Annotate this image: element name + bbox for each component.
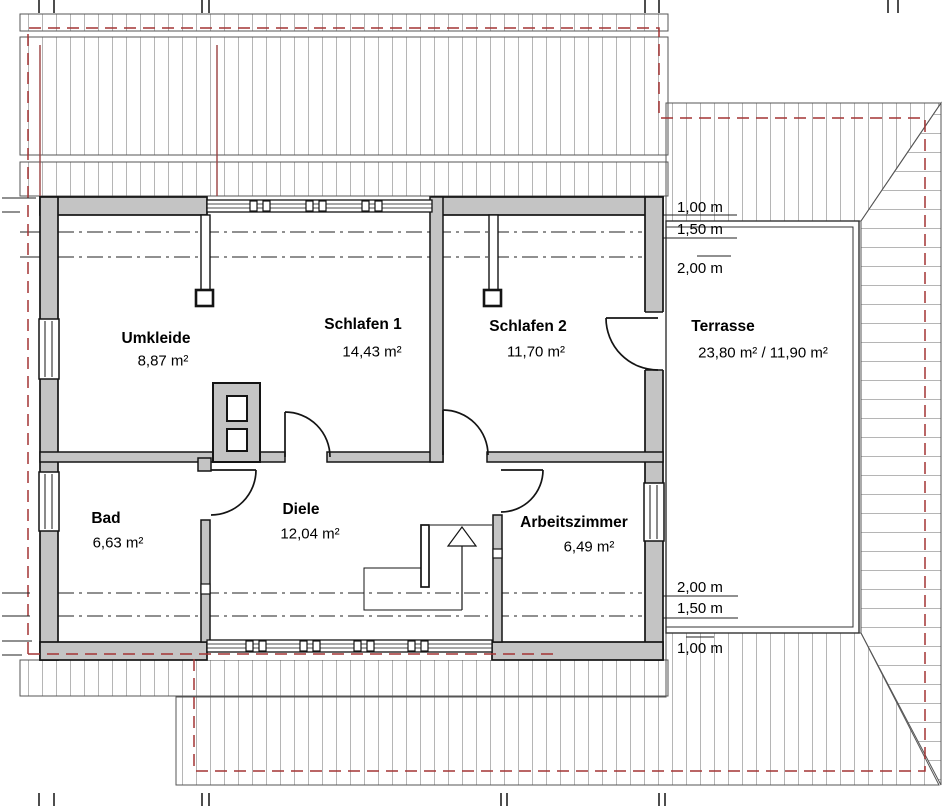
dim-bottom-100: 1,00 m [677,640,723,657]
room-area-diele: 12,04 m² [280,526,339,543]
room-label-bad: Bad [91,510,120,528]
margin-marks [2,198,36,655]
room-label-terrasse: Terrasse [691,318,754,336]
chimney [213,383,260,462]
dim-bottom-150: 1,50 m [677,600,723,617]
dim-top-150: 1,50 m [677,221,723,238]
room-label-umkleide: Umkleide [122,330,191,348]
roof-band-top [20,14,668,196]
room-area-umkleide: 8,87 m² [138,353,189,370]
window-bad [39,472,59,531]
room-label-arbeitszimmer: Arbeitszimmer [520,514,628,532]
room-area-schlafen2: 11,70 m² [507,344,565,361]
room-label-diele: Diele [282,501,319,519]
window-band-top [207,200,432,212]
terrace-door-opening [644,312,664,370]
plan-interior [40,197,663,660]
room-area-schlafen1: 14,43 m² [342,344,401,361]
room-label-schlafen1: Schlafen 1 [324,316,402,334]
room-area-arbeitszimmer: 6,49 m² [564,539,615,556]
dim-top-100: 1,00 m [677,199,723,216]
window-arbeitszimmer [644,483,664,541]
terrace-floor [666,221,859,633]
room-label-schlafen2: Schlafen 2 [489,318,567,336]
dim-top-200: 2,00 m [677,260,723,277]
floor-plan-page: Umkleide 8,87 m² Schlafen 1 14,43 m² Sch… [0,0,952,806]
floor-plan-drawing [0,0,952,806]
room-area-terrasse: 23,80 m² / 11,90 m² [698,345,828,362]
dim-bottom-200: 2,00 m [677,579,723,596]
window-band-bottom [207,640,492,652]
window-umkleide [39,319,59,379]
room-area-bad: 6,63 m² [93,535,144,552]
